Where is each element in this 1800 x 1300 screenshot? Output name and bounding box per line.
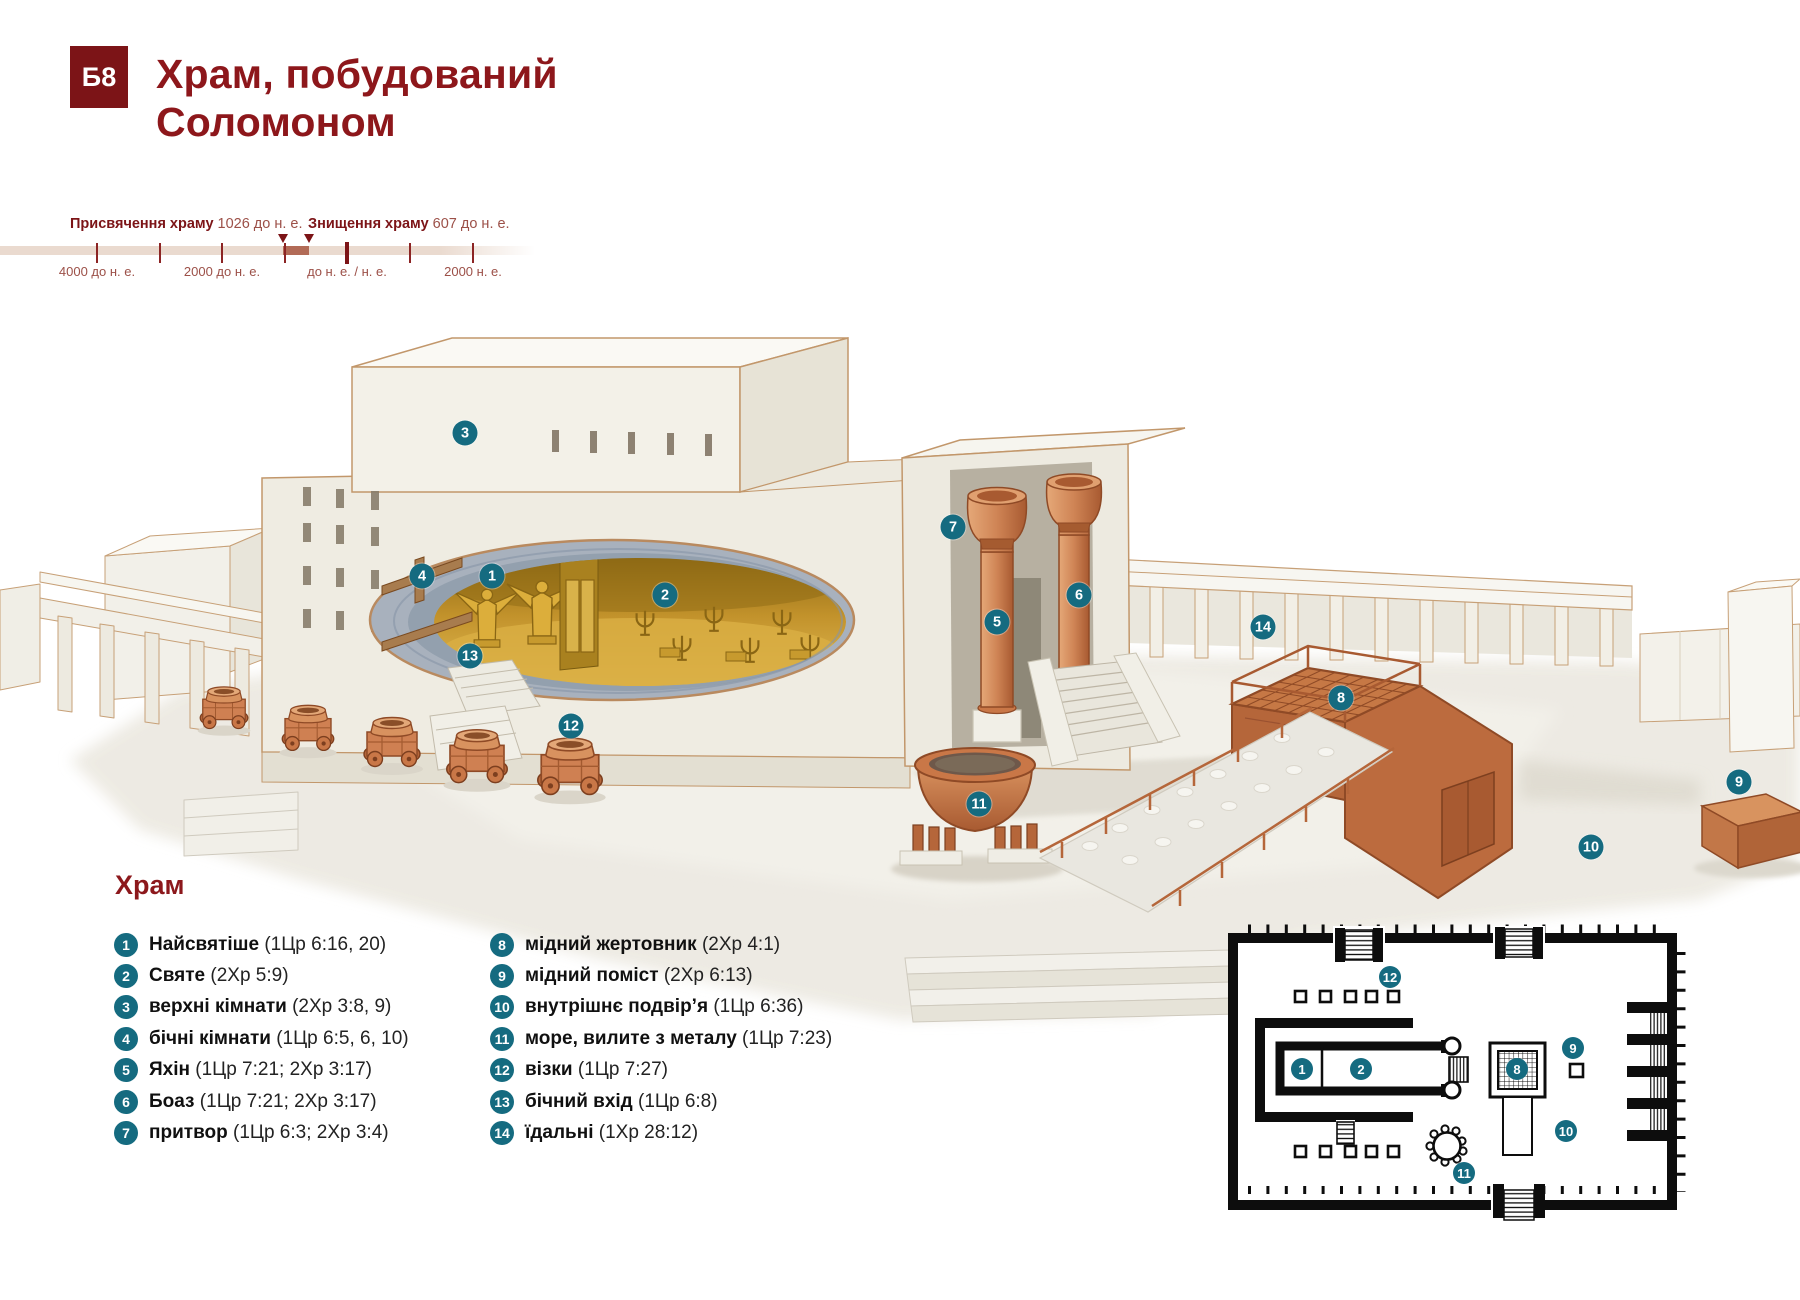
timeline-event-arrow-icon: [304, 234, 314, 243]
legend-item-label: Святе: [149, 965, 210, 986]
illustration-marker-11: 11: [967, 792, 992, 817]
legend-number-badge: 2: [114, 964, 138, 988]
legend-item-reference: (1Цр 6:8): [638, 1091, 718, 1112]
legend-item-9: 9мідний поміст (2Хр 6:13): [490, 960, 832, 991]
legend-item-14: 14їдальні (1Хр 28:12): [490, 1117, 832, 1148]
plan-gate-north-west: [1333, 926, 1385, 964]
plan-gate-south: [1491, 1182, 1545, 1222]
legend-item-text: Боаз (1Цр 7:21; 2Хр 3:17): [149, 1091, 377, 1113]
timeline-axis-label: 4000 до н. е.: [59, 264, 135, 279]
legend-item-text: їдальні (1Хр 28:12): [525, 1122, 698, 1144]
legend-item-text: море, вилите з металу (1Цр 7:23): [525, 1028, 832, 1050]
legend-item-text: бічні кімнати (1Цр 6:5, 6, 10): [149, 1028, 409, 1050]
timeline-tick: [409, 243, 411, 263]
illustration-marker-3: 3: [453, 421, 478, 446]
timeline-event-label: Присвячення храму1026 до н. е.: [70, 216, 303, 232]
plan-marker-11: 11: [1453, 1162, 1475, 1184]
legend-item-label: мідний жертовник: [525, 934, 702, 955]
legend-item-text: внутрішнє подвір’я (1Цр 6:36): [525, 996, 803, 1018]
legend-item-label: Яхін: [149, 1059, 195, 1080]
legend-item-reference: (2Хр 3:8, 9): [292, 996, 391, 1017]
legend-item-label: візки: [525, 1059, 578, 1080]
legend-item-1: 1Найсвятіше (1Цр 6:16, 20): [114, 929, 409, 960]
legend-item-label: море, вилите з металу: [525, 1028, 742, 1049]
legend-item-8: 8мідний жертовник (2Хр 4:1): [490, 929, 832, 960]
legend-item-text: мідний жертовник (2Хр 4:1): [525, 934, 780, 956]
legend-number-badge: 3: [114, 995, 138, 1019]
illustration-marker-4: 4: [410, 564, 435, 589]
plan-gate-north-east: [1493, 926, 1545, 960]
legend-item-label: притвор: [149, 1122, 233, 1143]
illustration-marker-6: 6: [1067, 583, 1092, 608]
timeline-tick: [284, 243, 286, 263]
timeline-tick: [159, 243, 161, 263]
legend-item-text: Найсвятіше (1Цр 6:16, 20): [149, 934, 386, 956]
timeline-axis-label: 2000 н. е.: [444, 264, 502, 279]
plan-pillar-boaz: [1444, 1082, 1460, 1098]
legend-column-1: 1Найсвятіше (1Цр 6:16, 20)2Святе (2Хр 5:…: [114, 929, 409, 1149]
plan-marker-8: 8: [1506, 1058, 1528, 1080]
legend-item-6: 6Боаз (1Цр 7:21; 2Хр 3:17): [114, 1086, 409, 1117]
illustration-marker-5: 5: [985, 610, 1010, 635]
legend-item-label: верхні кімнати: [149, 996, 292, 1017]
illustration-marker-9: 9: [1727, 770, 1752, 795]
legend-item-reference: (1Цр 7:21; 2Хр 3:17): [200, 1091, 377, 1112]
timeline-axis-label: 2000 до н. е.: [184, 264, 260, 279]
legend-item-12: 12візки (1Цр 7:27): [490, 1055, 832, 1086]
legend-item-reference: (1Цр 7:27): [578, 1059, 668, 1080]
plan-marker-12: 12: [1379, 966, 1401, 988]
legend-item-label: Найсвятіше: [149, 934, 264, 955]
legend-item-label: бічний вхід: [525, 1091, 638, 1112]
timeline-event-name: Присвячення храму: [70, 216, 214, 232]
plan-marker-9: 9: [1562, 1037, 1584, 1059]
legend-item-label: мідний поміст: [525, 965, 664, 986]
timeline-event-arrow-icon: [278, 234, 288, 243]
illustration-marker-1: 1: [480, 564, 505, 589]
timeline-event-name: Знищення храму: [308, 216, 429, 232]
legend-number-badge: 13: [490, 1090, 514, 1114]
legend-number-badge: 11: [490, 1027, 514, 1051]
timeline-bar: [0, 246, 535, 255]
illustration-marker-14: 14: [1251, 615, 1276, 640]
legend-number-badge: 5: [114, 1058, 138, 1082]
cutaway-interior: [370, 540, 854, 700]
legend-item-label: бічні кімнати: [149, 1028, 276, 1049]
plan-platform: [1570, 1064, 1583, 1077]
timeline-event-label: Знищення храму607 до н. е.: [308, 216, 510, 232]
legend-item-reference: (1Цр 7:23): [742, 1028, 832, 1049]
legend-number-badge: 6: [114, 1090, 138, 1114]
timeline-event-year: 607 до н. е.: [433, 216, 510, 232]
legend-item-13: 13бічний вхід (1Цр 6:8): [490, 1086, 832, 1117]
legend-item-text: візки (1Цр 7:27): [525, 1059, 668, 1081]
legend-number-badge: 10: [490, 995, 514, 1019]
legend-item-text: бічний вхід (1Цр 6:8): [525, 1091, 718, 1113]
legend-number-badge: 4: [114, 1027, 138, 1051]
legend-item-text: Святе (2Хр 5:9): [149, 965, 289, 987]
legend-item-label: Боаз: [149, 1091, 200, 1112]
legend-item-3: 3верхні кімнати (2Хр 3:8, 9): [114, 992, 409, 1023]
legend-item-5: 5Яхін (1Цр 7:21; 2Хр 3:17): [114, 1055, 409, 1086]
legend-number-badge: 8: [490, 933, 514, 957]
plan-marker-1: 1: [1291, 1058, 1313, 1080]
legend-item-reference: (1Цр 6:36): [713, 996, 803, 1017]
copper-platform: [1694, 794, 1800, 878]
plan-side-entrance: [1336, 1120, 1355, 1144]
legend-item-10: 10внутрішнє подвір’я (1Цр 6:36): [490, 992, 832, 1023]
plan-marker-2: 2: [1350, 1058, 1372, 1080]
timeline-event-year: 1026 до н. е.: [218, 216, 303, 232]
illustration-marker-7: 7: [941, 515, 966, 540]
timeline: 4000 до н. е.2000 до н. е.до н. е. / н. …: [0, 0, 700, 300]
legend-item-11: 11море, вилите з металу (1Цр 7:23): [490, 1023, 832, 1054]
plan-sea: [1426, 1125, 1466, 1165]
timeline-tick: [96, 243, 98, 263]
legend-number-badge: 12: [490, 1058, 514, 1082]
plan-pillar-jachin: [1444, 1038, 1460, 1054]
legend-number-badge: 14: [490, 1121, 514, 1145]
legend-item-reference: (2Хр 5:9): [210, 965, 288, 986]
legend-item-reference: (2Хр 6:13): [664, 965, 753, 986]
illustration-marker-2: 2: [653, 583, 678, 608]
legend-number-badge: 7: [114, 1121, 138, 1145]
plan-marker-10: 10: [1555, 1120, 1577, 1142]
legend-column-2: 8мідний жертовник (2Хр 4:1)9мідний поміс…: [490, 929, 832, 1149]
legend-item-reference: (1Цр 7:21; 2Хр 3:17): [195, 1059, 372, 1080]
legend-item-2: 2Святе (2Хр 5:9): [114, 960, 409, 991]
legend-item-reference: (1Цр 6:16, 20): [264, 934, 386, 955]
legend-item-label: їдальні: [525, 1122, 599, 1143]
plan-entrance-stairs: [1449, 1057, 1468, 1082]
timeline-era-divider-tick: [345, 242, 349, 264]
page: Б8 Храм, побудований Соломоном 4000 до н…: [0, 0, 1800, 1300]
legend-item-reference: (2Хр 4:1): [702, 934, 780, 955]
timeline-axis-label: до н. е. / н. е.: [307, 264, 387, 279]
legend-number-badge: 1: [114, 933, 138, 957]
legend-item-text: мідний поміст (2Хр 6:13): [525, 965, 753, 987]
legend-item-label: внутрішнє подвір’я: [525, 996, 713, 1017]
east-colonnade: [1092, 558, 1632, 666]
legend-item-reference: (1Цр 6:5, 6, 10): [276, 1028, 408, 1049]
courtyard-steps: [905, 950, 1238, 1022]
timeline-highlight-segment: [283, 246, 309, 255]
legend-number-badge: 9: [490, 964, 514, 988]
legend-heading: Храм: [115, 870, 185, 901]
timeline-tick: [472, 243, 474, 263]
timeline-tick: [221, 243, 223, 263]
legend-item-4: 4бічні кімнати (1Цр 6:5, 6, 10): [114, 1023, 409, 1054]
illustration-marker-8: 8: [1329, 686, 1354, 711]
legend-item-7: 7притвор (1Цр 6:3; 2Хр 3:4): [114, 1117, 409, 1148]
legend-item-reference: (1Цр 6:3; 2Хр 3:4): [233, 1122, 389, 1143]
illustration-marker-12: 12: [559, 714, 584, 739]
legend-item-text: Яхін (1Цр 7:21; 2Хр 3:17): [149, 1059, 372, 1081]
legend-item-text: притвор (1Цр 6:3; 2Хр 3:4): [149, 1122, 389, 1144]
legend-item-reference: (1Хр 28:12): [599, 1122, 698, 1143]
illustration-marker-13: 13: [458, 644, 483, 669]
legend-item-text: верхні кімнати (2Хр 3:8, 9): [149, 996, 391, 1018]
illustration-marker-10: 10: [1579, 835, 1604, 860]
